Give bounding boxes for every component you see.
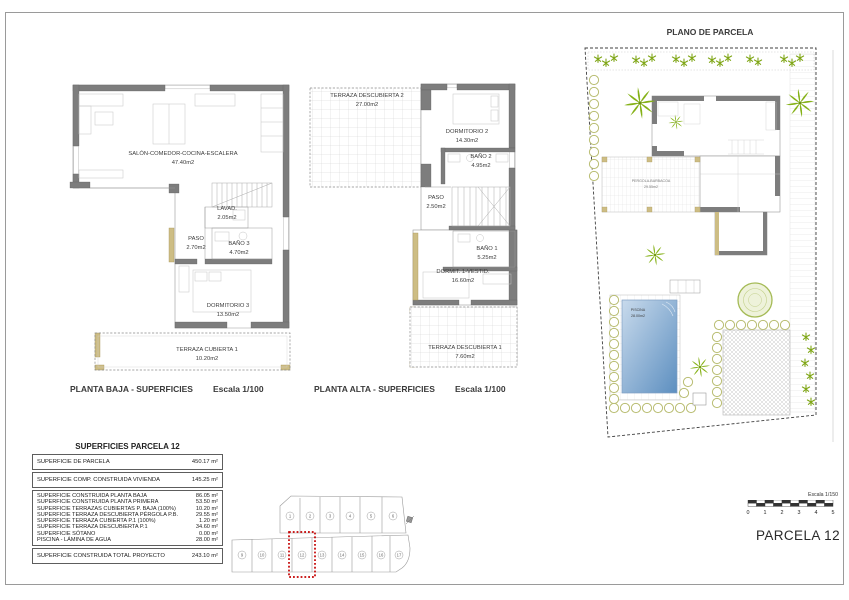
hatched-terrace [723, 330, 790, 415]
pool-area: 28.00m2 [631, 314, 645, 318]
room-label-terraza-descubierta1: TERRAZA DESCUBIERTA 1 7.60m2 [428, 344, 502, 362]
table-title: SUPERFICIES PARCELA 12 [32, 442, 223, 451]
scale-tick: 3 [798, 510, 801, 516]
room-label-dormitorio3: DORMITORIO 3 13.50m2 [207, 302, 249, 320]
planta-baja-plan: SALÓN-COMEDOR-COCINA-ESCALERA 47.40m2 LA… [65, 82, 293, 412]
room-label-bano3: BAÑO 3 4.70m2 [228, 240, 249, 258]
room-label-paso: PASO 2.70m2 [186, 235, 205, 253]
plot-number: 10 [260, 553, 265, 558]
pergola: PERGOLA-BARBACOA 29.55m2 [602, 157, 700, 212]
table-section-total: SUPERFICIE CONSTRUIDA TOTAL PROYECTO 243… [32, 548, 223, 564]
room-label-terraza-cubierta1: TERRAZA CUBIERTA 1 10.20m2 [176, 346, 238, 364]
scale-tick: 2 [781, 510, 784, 516]
table-row: SUPERFICIE COMP. CONSTRUIDA VIVIENDA 145… [33, 473, 222, 487]
plano-parcela-title: PLANO DE PARCELA [578, 27, 842, 37]
plano-parcela-drawing: PERGOLA-BARBACOA 29.55m2 PISCINA 28.00m2 [578, 42, 842, 454]
side-walkway [790, 54, 815, 412]
room-label-terraza-descubierta2: TERRAZA DESCUBIERTA 2 27.00m2 [330, 92, 404, 110]
planta-baja-caption: PLANTA BAJA - SUPERFICIES [70, 384, 193, 394]
table-section-desglose: SUPERFICIE CONSTRUIDA PLANTA BAJA 86.05 … [32, 490, 223, 546]
room-label-dormitorio2: DORMITORIO 2 14.30m2 [446, 128, 488, 146]
table-section-vivienda: SUPERFICIE COMP. CONSTRUIDA VIVIENDA 145… [32, 472, 223, 488]
room-label-lavadero: LAVAD. 2.05m2 [217, 205, 237, 223]
plot-number: 15 [360, 553, 365, 558]
scale-tick: 5 [832, 510, 835, 516]
planta-baja-scale: Escala 1/100 [213, 384, 264, 394]
plot-number: 11 [280, 553, 285, 558]
pool: PISCINA 28.00m2 [610, 295, 680, 400]
table-row: SUPERFICIE DE PARCELA 450.17 m² [33, 455, 222, 469]
planta-alta-plan: TERRAZA DESCUBIERTA 2 27.00m2 DORMITORIO… [303, 82, 531, 412]
room-label-dormitorio1: DORMIT. 1-VESTID. 16.60m2 [436, 268, 489, 286]
pool-label: PISCINA [631, 308, 646, 312]
sheet-name: PARCELA 12 [700, 528, 840, 543]
plot-number: 16 [379, 553, 384, 558]
graphic-scale-bar: 0 1 2 3 4 5 [745, 500, 841, 522]
planta-alta-caption: PLANTA ALTA - SUPERFICIES [314, 384, 435, 394]
plano-parcela-plan: PERGOLA-BARBACOA 29.55m2 PISCINA 28.00m2 [578, 42, 842, 454]
scale-tick: 4 [815, 510, 818, 516]
plot-number: 13 [320, 553, 325, 558]
plot-number: 12 [300, 553, 305, 558]
pergola-label: PERGOLA-BARBACOA [632, 179, 671, 183]
plot-number: 17 [397, 553, 402, 558]
table-row: PISCINA - LÁMINA DE AGUA 28.00 m² [33, 537, 222, 543]
plot-number: 14 [340, 553, 345, 558]
room-label-salon: SALÓN-COMEDOR-COCINA-ESCALERA 47.40m2 [128, 150, 237, 168]
table-section-parcela: SUPERFICIE DE PARCELA 450.17 m² [32, 454, 223, 470]
scale-tick: 1 [764, 510, 767, 516]
pergola-area: 29.55m2 [644, 185, 658, 189]
corner-symbol [406, 516, 414, 524]
scale-tick: 0 [747, 510, 750, 516]
surfaces-table: SUPERFICIE DE PARCELA 450.17 m² SUPERFIC… [32, 454, 223, 564]
equipment-square [693, 393, 706, 405]
room-label-bano1: BAÑO 1 5.25m2 [476, 245, 497, 263]
locator-map: 1 2 3 4 5 6 9 10 11 12 [230, 488, 415, 583]
room-label-bano2: BAÑO 2 4.95m2 [470, 153, 491, 171]
bush-row-left [589, 75, 598, 180]
locator-top-row [280, 496, 406, 533]
room-label-paso: PASO 2.50m2 [426, 194, 445, 212]
graphic-scale-label: Escala 1/150 [750, 492, 838, 498]
planta-alta-scale: Escala 1/100 [455, 384, 506, 394]
round-tree [738, 283, 772, 317]
table-row-total: SUPERFICIE CONSTRUIDA TOTAL PROYECTO 243… [33, 549, 222, 563]
